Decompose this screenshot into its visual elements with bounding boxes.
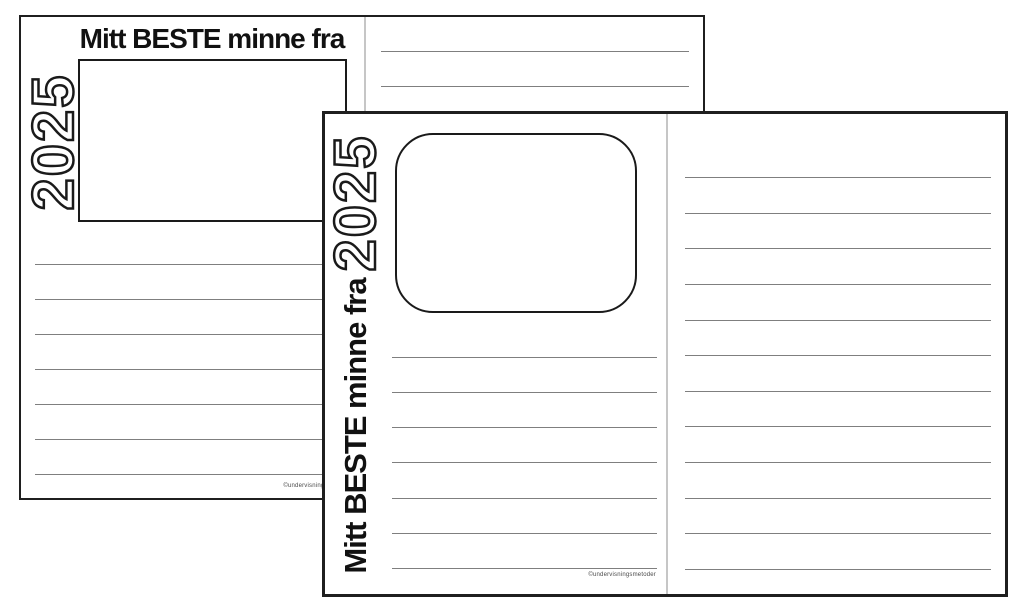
writing-line xyxy=(35,299,347,300)
writing-line xyxy=(685,284,991,285)
writing-line xyxy=(392,357,657,358)
writing-line xyxy=(685,391,991,392)
year-vertical-text: 2025 xyxy=(24,67,84,217)
writing-line xyxy=(685,213,991,214)
writing-line xyxy=(392,462,657,463)
writing-line xyxy=(685,177,991,178)
column-divider xyxy=(666,114,668,594)
writing-line xyxy=(35,369,347,370)
writing-line xyxy=(392,568,657,569)
credit-text: ©undervisningsmetoder xyxy=(588,572,656,578)
writing-line xyxy=(35,334,347,335)
writing-line xyxy=(35,404,347,405)
writing-line xyxy=(685,248,991,249)
writing-line xyxy=(35,474,347,475)
writing-line xyxy=(392,498,657,499)
writing-line xyxy=(392,427,657,428)
ruled-lines-right-column xyxy=(685,177,991,570)
writing-line xyxy=(35,264,347,265)
writing-line xyxy=(381,51,689,52)
ruled-lines-left-column xyxy=(392,357,657,569)
writing-line xyxy=(685,320,991,321)
year-vertical-text: 2025 xyxy=(326,128,386,278)
worksheet-page-front: 2025 Mitt BESTE minne fra ©undervisnings… xyxy=(322,111,1008,597)
writing-line xyxy=(35,439,347,440)
photo-box-rounded xyxy=(395,133,637,313)
writing-line xyxy=(392,533,657,534)
writing-line xyxy=(685,533,991,534)
writing-line xyxy=(685,498,991,499)
writing-line xyxy=(685,462,991,463)
writing-line xyxy=(392,392,657,393)
page-title-vertical: Mitt BESTE minne fra xyxy=(328,266,384,586)
writing-line xyxy=(685,355,991,356)
photo-box xyxy=(78,59,347,222)
ruled-lines-left-column xyxy=(35,264,347,475)
writing-line xyxy=(381,86,689,87)
page-title: Mitt BESTE minne fra xyxy=(76,23,348,55)
writing-line xyxy=(685,569,991,570)
worksheet-preview: Mitt BESTE minne fra 2025 ©undervisnings… xyxy=(0,0,1024,614)
writing-line xyxy=(685,426,991,427)
ruled-lines-right-column xyxy=(381,51,689,87)
